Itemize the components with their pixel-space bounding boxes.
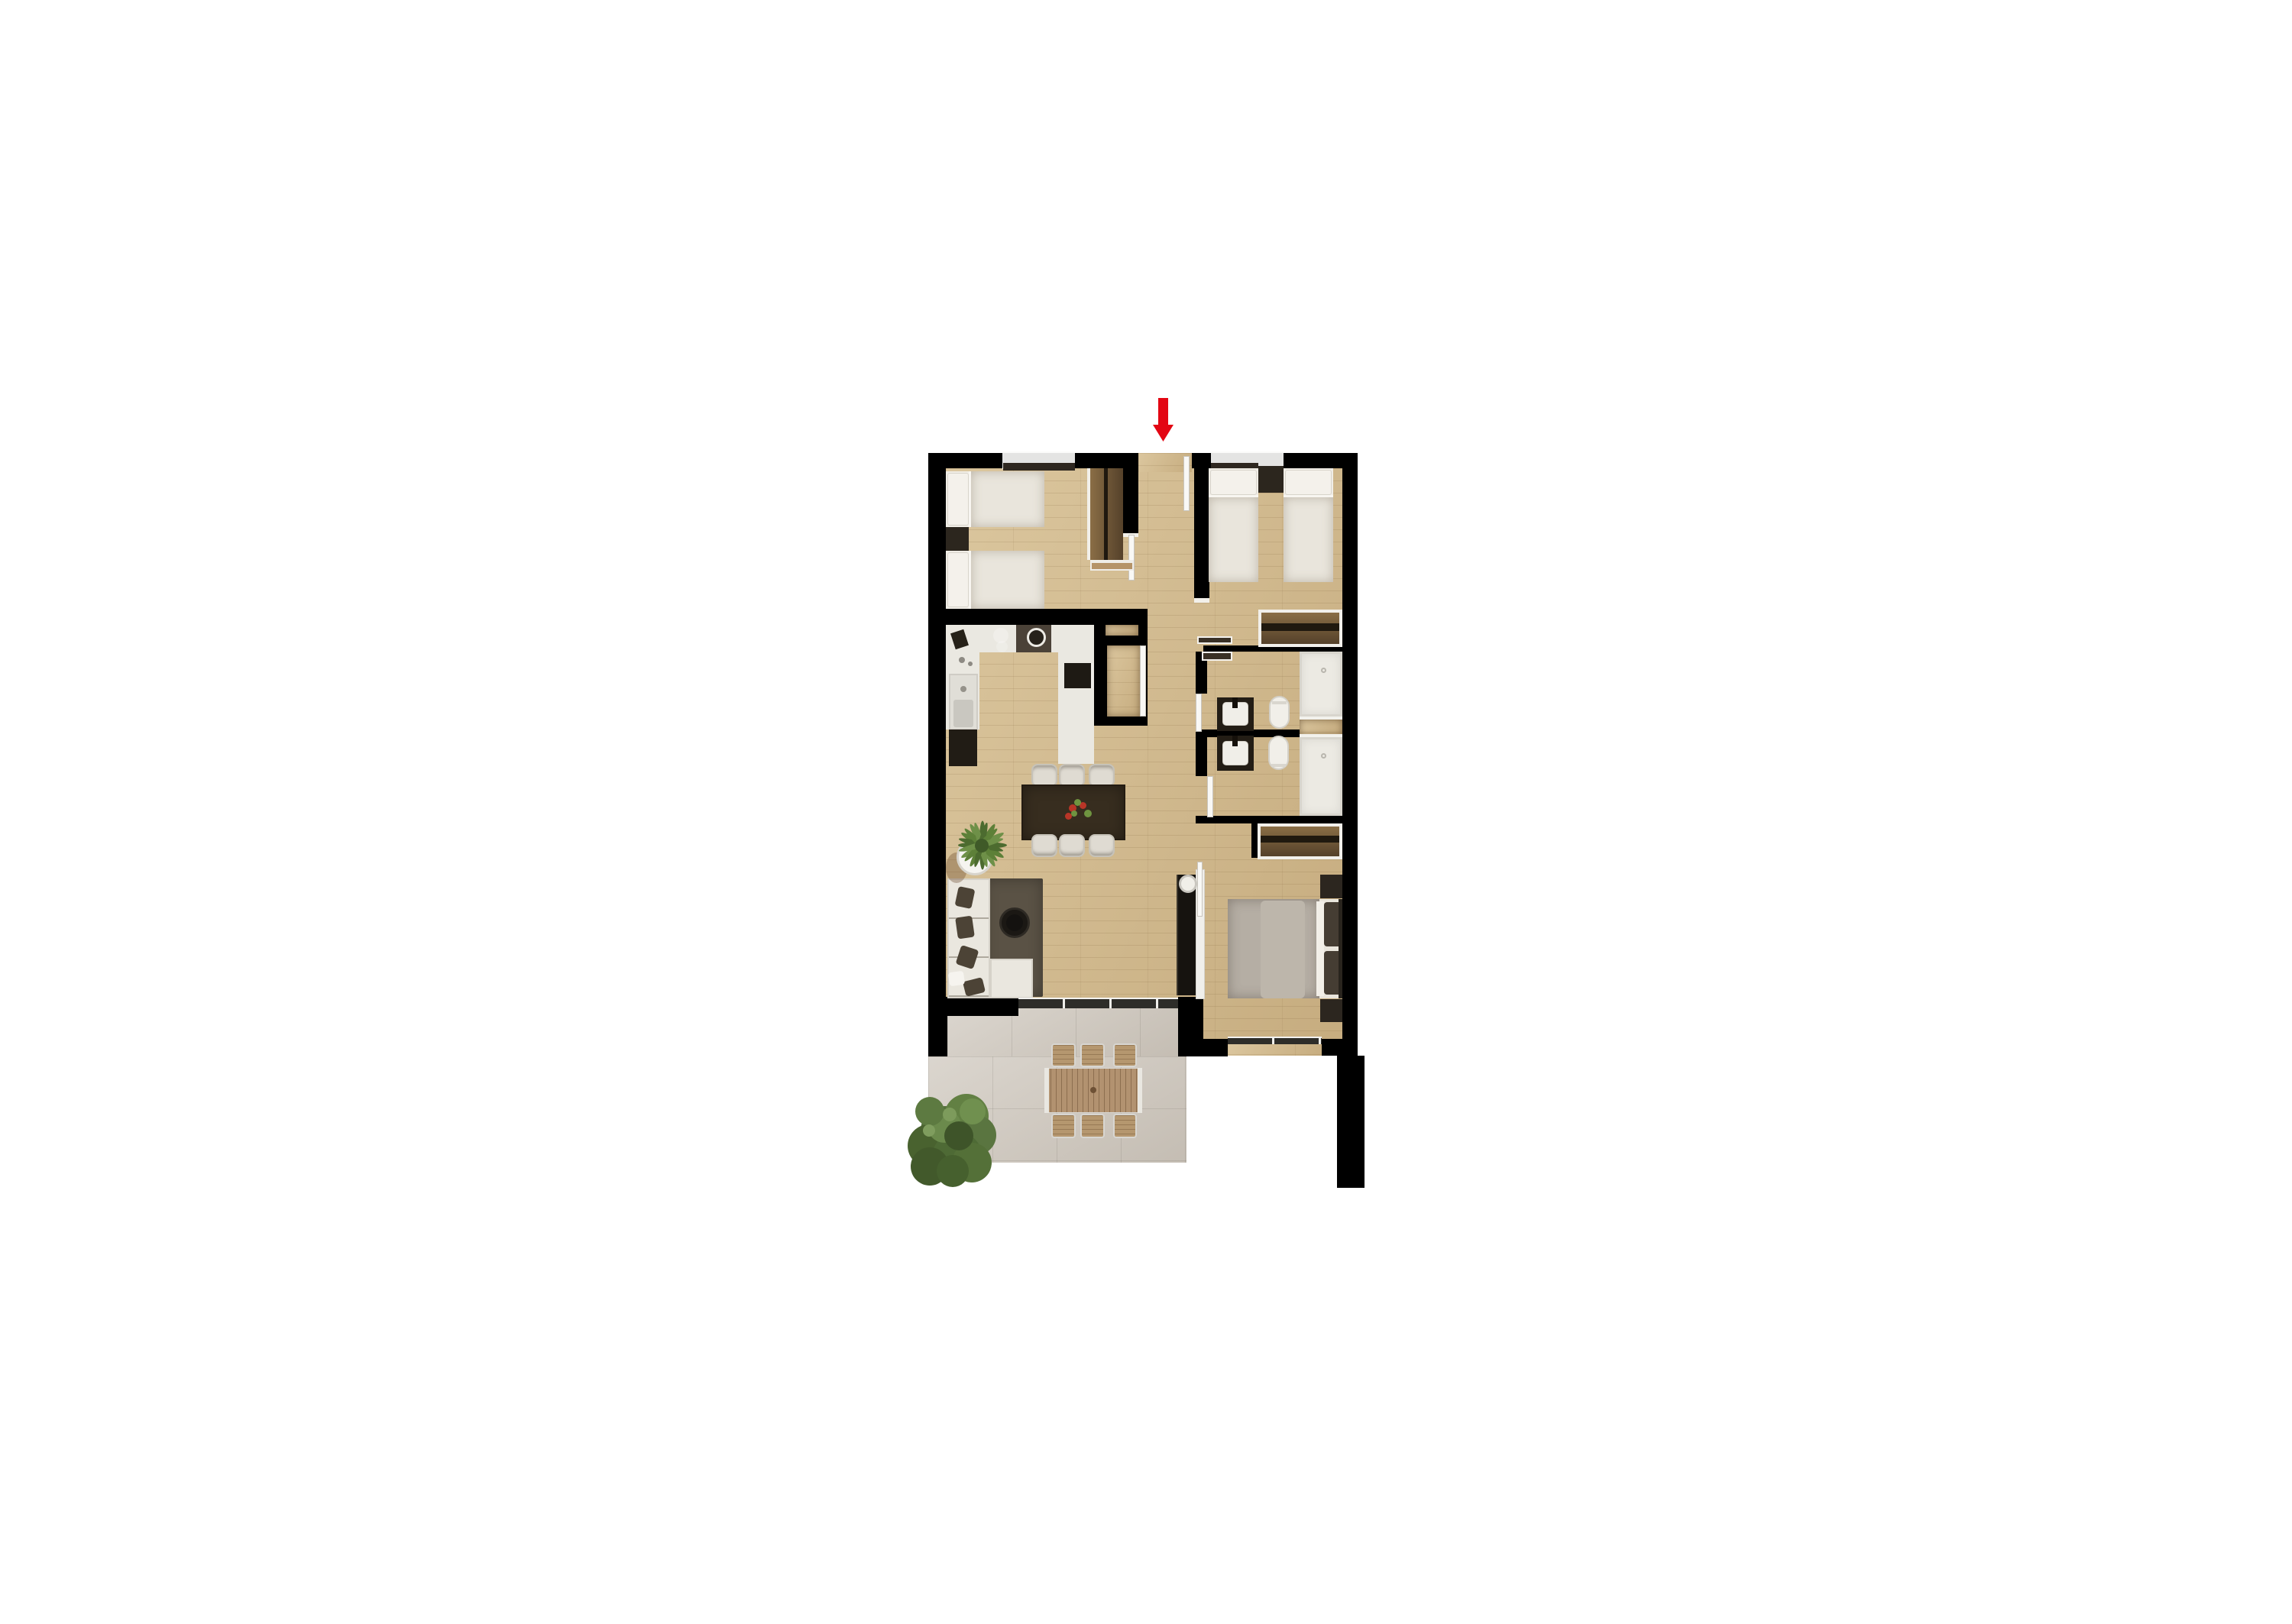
master-wardrobe-shelf [1261,836,1339,843]
coffee-table [999,907,1030,938]
outdoor-chair-bottom-2 [1080,1114,1105,1138]
bedroom1-bed2-duvet [969,551,1044,609]
tree-blob-10 [960,1098,986,1124]
floor-plan-canvas [0,0,2292,1624]
bath1-toilet-seam [1272,701,1287,704]
bedroom2-bed2-duvet [1284,495,1333,582]
front-door-leaf [1183,456,1190,511]
master-door-leaf [1197,862,1203,917]
bedroom1-door-leaf [1128,535,1135,581]
kitchen-north-wall [928,609,1148,625]
tv-console-plate [1179,875,1197,893]
master-bed-duvet-fold [1261,901,1305,998]
dining-chair-bottom-1 [1031,834,1057,857]
outdoor-chair-bottom-1 [1051,1114,1076,1138]
master-nightstand-top [1320,875,1342,898]
bedroom2-bed1-duvet [1209,495,1258,582]
shower-niche-wood [1300,720,1342,736]
dining-chair-top-1 [1031,764,1057,787]
dining-chair-bottom-3 [1089,834,1115,857]
master-bed-headboard [1339,899,1342,998]
bath1-shower-drain [1321,668,1326,673]
bedroom2-bed1-pillow [1210,470,1257,495]
dining-chair-top-2 [1059,764,1085,787]
kitchen-utensil-b [968,662,973,666]
hall-closet-tall-interior [1107,645,1140,717]
bedroom1-bed1-duvet [969,471,1044,527]
entrance-arrow-stem [1158,398,1168,426]
bath2-door-leaf [1207,776,1213,817]
bedroom1-wardrobe-shelf-wood [1092,563,1132,569]
living-sliding-door [1018,998,1178,1008]
sofa-chaise [990,959,1033,998]
bedroom1-bed1-pillow [947,473,969,526]
table-tomato-green-3 [1071,810,1077,817]
bedroom2-nightstand [1258,466,1284,493]
sofa-pillow-b [955,916,975,940]
bedroom2-wardrobe-shelf [1261,623,1339,631]
master-nightstand-bottom [1320,999,1342,1022]
bedroom2-door-bar-a [1197,636,1232,644]
outdoor-chair-top-3 [1113,1043,1137,1067]
hall-closet-door [1140,645,1146,717]
outdoor-chair-bottom-3 [1113,1114,1137,1138]
bedroom2-west-wall-cap [1194,598,1209,603]
dining-chair-top-3 [1089,764,1115,787]
kitchen-burner-b [996,641,1008,652]
kitchen-microwave [1064,663,1093,688]
palm-center [975,839,989,852]
kitchen-kettle [1027,628,1046,647]
master-bottom-wall-right [1322,1039,1358,1056]
bedroom1-nightstand [946,527,969,551]
hall-closet-niche [1106,625,1138,636]
sofa-pillow-white [948,971,965,987]
terrace-left-wall [928,1007,947,1056]
bedroom1-bed2-pillow [947,552,969,607]
bath-west-wall-b [1196,732,1207,776]
bedroom1-east-wall [1123,453,1138,537]
outdoor-table-hole [1090,1087,1096,1093]
bath1-faucet [1232,697,1238,708]
bath2-faucet [1232,736,1238,746]
bedroom2-door-bar-b [1202,652,1232,661]
master-balcony-door [1228,1037,1322,1044]
kitchen-sink-faucet [960,686,966,692]
table-tomato-green-2 [1084,810,1092,817]
dining-chair-bottom-2 [1059,834,1085,857]
kitchen-sink-bowl [953,700,973,727]
bath2-shower-tray [1300,737,1342,816]
outdoor-table-end-right [1138,1068,1142,1113]
kitchen-utensil-a [959,657,965,663]
bath2-south-wall [1196,816,1342,823]
table-tomato-green-1 [1074,799,1081,806]
bedroom2-bed2-pillow [1285,470,1332,495]
tree-blob-11 [915,1097,944,1126]
entrance-arrow-head [1153,425,1174,442]
master-bed-sheet-strip [1316,901,1324,996]
bath1-shower-tray [1300,652,1342,717]
bath2-shower-drain [1321,753,1326,759]
outdoor-table-end-left [1044,1068,1049,1113]
tree-highlight-1 [943,1108,957,1121]
bedroom1-wardrobe-divider [1104,468,1108,560]
bedroom1-dresser [1003,463,1075,471]
boundary-wall-column [1337,1056,1365,1188]
bath1-door-leaf [1196,694,1202,732]
kitchen-base-cabinet [949,730,977,766]
tree-highlight-2 [923,1124,935,1137]
outdoor-chair-top-1 [1051,1043,1076,1067]
outer-wall-top-c [1192,453,1211,468]
tree-blob-12 [937,1155,969,1187]
outer-wall-left [928,453,946,1016]
master-bottom-wall-left [1186,1039,1228,1056]
bedroom2-west-wall [1194,468,1209,602]
bath2-toilet-seam [1271,764,1286,767]
outdoor-chair-top-2 [1080,1043,1105,1067]
tree-blob-9 [944,1121,973,1150]
outer-wall-right [1342,453,1358,1056]
